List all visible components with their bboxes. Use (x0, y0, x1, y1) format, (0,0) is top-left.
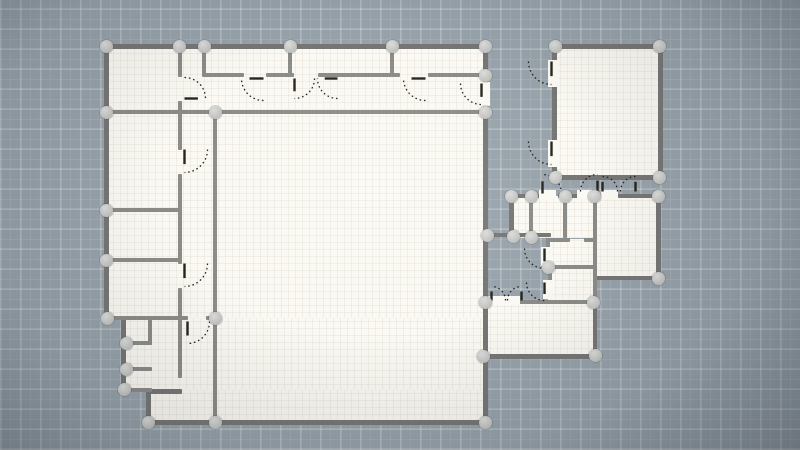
wall-node-handle[interactable] (479, 296, 492, 309)
wall-node-handle[interactable] (100, 254, 113, 267)
wall-segment-exterior[interactable] (146, 420, 488, 425)
wall-segment-interior[interactable] (584, 238, 597, 242)
wall-segment-interior[interactable] (428, 73, 486, 77)
door-arc-icon (601, 175, 619, 193)
door-arc-icon (186, 320, 211, 345)
wall-segment-exterior[interactable] (656, 194, 661, 280)
door-swing-symbol[interactable] (183, 76, 207, 100)
wall-node-handle[interactable] (525, 190, 538, 203)
room-floor (148, 390, 485, 422)
wall-node-handle[interactable] (505, 190, 518, 203)
door-swing-symbol[interactable] (316, 77, 339, 100)
wall-node-handle[interactable] (588, 190, 601, 203)
wall-segment-interior[interactable] (104, 316, 188, 320)
wall-node-handle[interactable] (284, 40, 297, 53)
wall-segment-interior[interactable] (178, 288, 182, 319)
floor-plan-canvas[interactable] (0, 0, 800, 450)
door-arc-icon (183, 76, 207, 100)
wall-node-handle[interactable] (100, 106, 113, 119)
door-arc-icon (183, 148, 209, 174)
wall-node-handle[interactable] (653, 40, 666, 53)
wall-segment-interior[interactable] (178, 174, 182, 264)
wall-node-handle[interactable] (100, 40, 113, 53)
door-swing-symbol[interactable] (619, 175, 637, 193)
wall-node-handle[interactable] (549, 40, 562, 53)
wall-segment-interior[interactable] (104, 110, 488, 114)
wall-node-handle[interactable] (589, 349, 602, 362)
room-floor (593, 196, 659, 278)
door-arc-icon (183, 262, 209, 288)
wall-node-handle[interactable] (479, 106, 492, 119)
wall-node-handle[interactable] (118, 383, 131, 396)
wall-segment-exterior[interactable] (658, 44, 663, 180)
wall-segment-exterior[interactable] (552, 44, 663, 49)
door-arc-icon (490, 285, 507, 302)
door-arc-icon (316, 77, 339, 100)
wall-segment-interior[interactable] (213, 110, 217, 425)
door-swing-symbol[interactable] (402, 77, 427, 102)
door-swing-symbol[interactable] (527, 140, 553, 166)
wall-segment-exterior[interactable] (121, 318, 126, 393)
door-arc-icon (527, 60, 553, 86)
door-arc-icon (459, 82, 483, 106)
wall-node-handle[interactable] (173, 40, 186, 53)
door-swing-symbol[interactable] (525, 281, 546, 302)
wall-segment-exterior[interactable] (552, 86, 557, 142)
wall-node-handle[interactable] (477, 350, 490, 363)
wall-node-handle[interactable] (652, 272, 665, 285)
door-swing-symbol[interactable] (459, 82, 483, 106)
wall-node-handle[interactable] (209, 106, 222, 119)
door-arc-icon (619, 175, 637, 193)
wall-node-handle[interactable] (481, 229, 494, 242)
wall-node-handle[interactable] (652, 190, 665, 203)
door-arc-icon (402, 77, 427, 102)
door-swing-symbol[interactable] (183, 262, 209, 288)
wall-node-handle[interactable] (120, 337, 133, 350)
wall-node-handle[interactable] (209, 312, 222, 325)
wall-node-handle[interactable] (479, 416, 492, 429)
wall-segment-interior[interactable] (178, 101, 182, 150)
wall-node-handle[interactable] (142, 416, 155, 429)
wall-segment-interior[interactable] (202, 73, 244, 77)
wall-node-handle[interactable] (120, 363, 133, 376)
wall-node-handle[interactable] (209, 416, 222, 429)
plan-viewport (0, 0, 800, 450)
wall-segment-exterior[interactable] (593, 276, 660, 280)
wall-segment-interior[interactable] (104, 208, 182, 212)
door-swing-symbol[interactable] (506, 285, 523, 302)
wall-node-handle[interactable] (198, 40, 211, 53)
room-floor (553, 46, 659, 177)
door-arc-icon (506, 285, 523, 302)
wall-segment-interior[interactable] (593, 194, 597, 302)
wall-segment-interior[interactable] (178, 318, 182, 378)
wall-node-handle[interactable] (653, 171, 666, 184)
wall-node-handle[interactable] (386, 40, 399, 53)
room-floor (483, 301, 596, 356)
wall-segment-interior[interactable] (104, 258, 182, 262)
wall-node-handle[interactable] (559, 190, 572, 203)
wall-node-handle[interactable] (549, 171, 562, 184)
door-swing-symbol[interactable] (490, 285, 507, 302)
wall-node-handle[interactable] (101, 312, 114, 325)
wall-node-handle[interactable] (479, 69, 492, 82)
wall-node-handle[interactable] (542, 261, 555, 274)
wall-node-handle[interactable] (479, 40, 492, 53)
wall-segment-exterior[interactable] (483, 104, 488, 425)
door-swing-symbol[interactable] (293, 77, 316, 100)
wall-segment-interior[interactable] (148, 318, 152, 345)
wall-node-handle[interactable] (525, 231, 538, 244)
door-arc-icon (527, 140, 553, 166)
wall-node-handle[interactable] (100, 204, 113, 217)
door-arc-icon (293, 77, 316, 100)
door-swing-symbol[interactable] (240, 77, 265, 102)
wall-node-handle[interactable] (587, 296, 600, 309)
wall-node-handle[interactable] (507, 230, 520, 243)
wall-segment-exterior[interactable] (481, 354, 599, 359)
door-arc-icon (525, 281, 546, 302)
door-swing-symbol[interactable] (186, 320, 211, 345)
door-swing-symbol[interactable] (601, 175, 619, 193)
wall-segment-exterior[interactable] (104, 44, 109, 321)
door-swing-symbol[interactable] (527, 60, 553, 86)
door-arc-icon (240, 77, 265, 102)
door-swing-symbol[interactable] (183, 148, 209, 174)
room-floor (511, 196, 598, 238)
